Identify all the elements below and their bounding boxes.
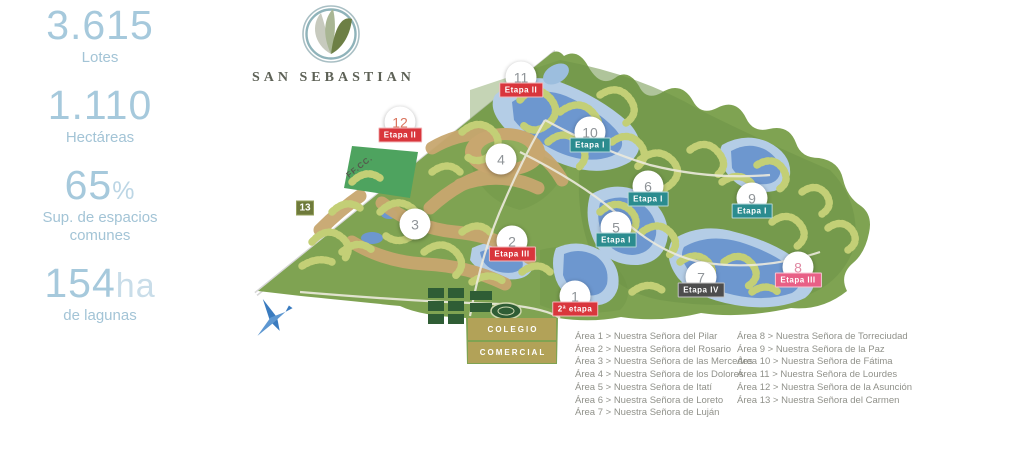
compass-icon xyxy=(243,289,299,341)
legend-item: Área 13 > Nuestra Señora del Carmen xyxy=(737,395,912,408)
comercial-label: COMERCIAL xyxy=(469,348,557,357)
marker-number: 3 xyxy=(411,216,419,232)
etapa-badge-2: Etapa III xyxy=(488,247,535,262)
legend-item: Área 2 > Nuestra Señora del Rosario xyxy=(575,344,753,357)
legend-item: Área 12 > Nuestra Señora de la Asunción xyxy=(737,382,912,395)
map-marker-7[interactable]: 7Etapa IV xyxy=(686,262,717,293)
legend-item: Área 7 > Nuestra Señora de Luján xyxy=(575,407,753,420)
legend-item: Área 5 > Nuestra Señora de Itatí xyxy=(575,382,753,395)
etapa-badge-5: Etapa I xyxy=(595,233,637,248)
legend-left: Área 1 > Nuestra Señora del PilarÁrea 2 … xyxy=(575,331,753,420)
legend-item: Área 11 > Nuestra Señora de Lourdes xyxy=(737,369,912,382)
map-marker-2[interactable]: 2Etapa III xyxy=(497,226,528,257)
etapa-badge-6: Etapa I xyxy=(627,192,669,207)
etapa-badge-1: 2ª etapa xyxy=(552,302,599,317)
map-marker-6[interactable]: 6Etapa I xyxy=(633,171,664,202)
map-marker-9[interactable]: 9Etapa I xyxy=(737,183,768,214)
etapa-badge-9: Etapa I xyxy=(731,204,773,219)
marker-number: 4 xyxy=(497,151,505,167)
marker-number: 13 xyxy=(299,203,310,214)
map-marker-5[interactable]: 5Etapa I xyxy=(601,212,632,243)
page: 3.615 Lotes 1.110 Hectáreas 65% Sup. de … xyxy=(0,0,1009,450)
etapa-badge-12: Etapa II xyxy=(378,128,422,143)
etapa-badge-7: Etapa IV xyxy=(677,283,725,298)
etapa-badge-8: Etapa III xyxy=(774,273,821,288)
legend-item: Área 1 > Nuestra Señora del Pilar xyxy=(575,331,753,344)
map-marker-4[interactable]: 4 xyxy=(486,144,517,175)
map-marker-1[interactable]: 12ª etapa xyxy=(560,281,591,312)
legend-item: Área 10 > Nuestra Señora de Fátima xyxy=(737,356,912,369)
legend-right: Área 8 > Nuestra Señora de TorreciudadÁr… xyxy=(737,331,912,407)
map-marker-8[interactable]: 8Etapa III xyxy=(783,252,814,283)
legend-item: Área 6 > Nuestra Señora de Loreto xyxy=(575,395,753,408)
map-marker-12[interactable]: 12Etapa II xyxy=(385,107,416,138)
legend-item: Área 3 > Nuestra Señora de las Mercedes xyxy=(575,356,753,369)
etapa-badge-11: Etapa II xyxy=(499,83,543,98)
legend-item: Área 4 > Nuestra Señora de los Dolores xyxy=(575,369,753,382)
map-marker-3[interactable]: 3 xyxy=(400,209,431,240)
map-marker-13[interactable]: 13 xyxy=(296,201,314,216)
legend-item: Área 9 > Nuestra Señora de la Paz xyxy=(737,344,912,357)
colegio-label: COLEGIO xyxy=(469,325,557,334)
etapa-badge-10: Etapa I xyxy=(569,138,611,153)
map-marker-10[interactable]: 10Etapa I xyxy=(575,117,606,148)
map-marker-11[interactable]: 11Etapa II xyxy=(506,62,537,93)
legend-item: Área 8 > Nuestra Señora de Torreciudad xyxy=(737,331,912,344)
